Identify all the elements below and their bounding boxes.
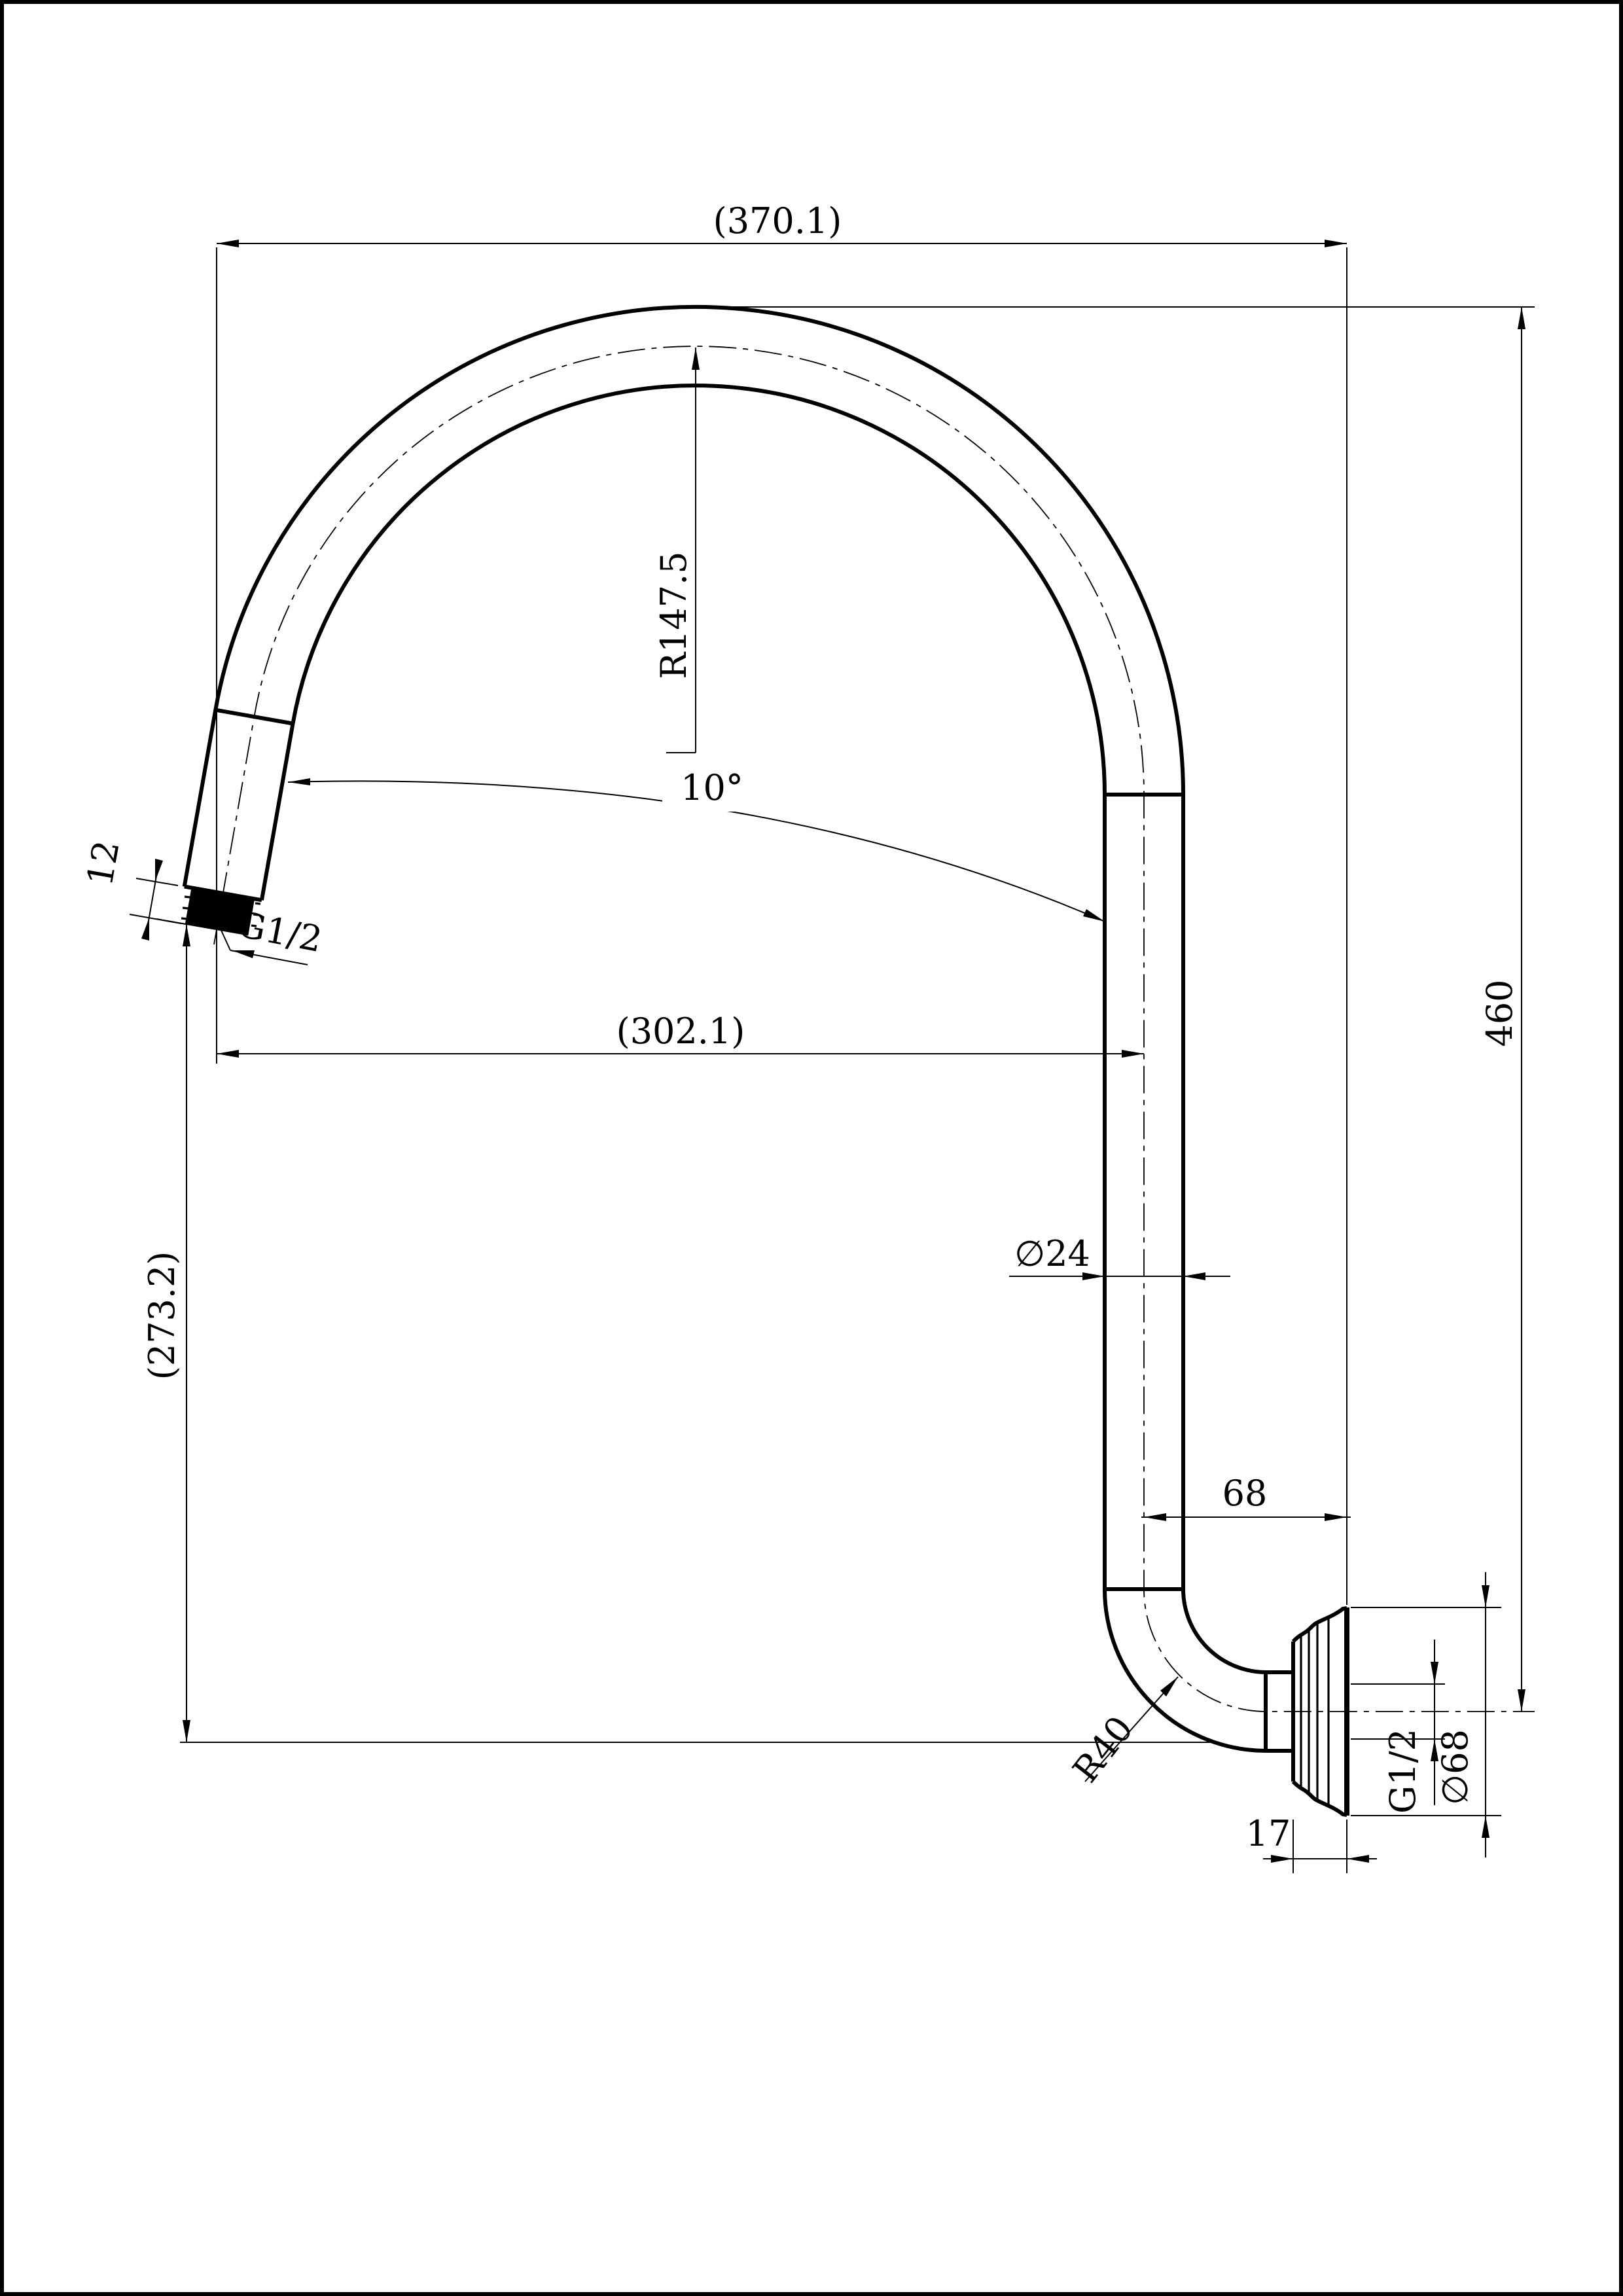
pipe-centerline (214, 346, 1535, 1712)
technical-drawing-canvas: (370.1) 460 R147.5 10° (302.1) (273 (0, 0, 1623, 2296)
dim-reach: (302.1) (217, 1011, 1144, 1058)
arrowhead (1183, 1272, 1205, 1280)
arrowhead (232, 950, 255, 958)
dim-wall-thread: G1/2 (1351, 1640, 1445, 1814)
dim-axis-to-wall: 68 (1141, 1473, 1351, 1521)
dim-label-axis-to-wall: 68 (1222, 1473, 1268, 1514)
arrowhead (1271, 1855, 1293, 1863)
thread-crest-tick (185, 897, 190, 897)
arrowhead (1144, 1513, 1166, 1521)
arrowhead (155, 859, 163, 882)
pipe-centerline-path (214, 346, 1535, 1712)
arrowhead (692, 348, 700, 370)
thread-crest-tick (255, 903, 260, 904)
arrowhead (217, 1050, 239, 1058)
dim-overall-width: (370.1) (217, 200, 1347, 1605)
dim-main-bend-radius: R147.5 (653, 348, 700, 753)
thread-crest-tick (183, 908, 188, 908)
dim-label-pipe-diameter: ∅24 (1014, 1233, 1090, 1274)
dim-label-wall-thread: G1/2 (1382, 1729, 1423, 1814)
arrowhead (1325, 240, 1347, 247)
arrowhead (141, 918, 149, 941)
arrowhead (183, 1720, 190, 1742)
arrowhead (1325, 1513, 1347, 1521)
arrowhead (1518, 307, 1525, 329)
label-wall-bend-radius: R40 (1065, 1677, 1178, 1790)
thread-crest-tick (181, 918, 187, 919)
dim-label-flange-diameter: ∅68 (1435, 1729, 1476, 1805)
extension-line-b (130, 914, 181, 924)
dim-overall-height: 460 (696, 307, 1535, 1712)
drawing-sheet: (370.1) 460 R147.5 10° (302.1) (273 (0, 0, 1623, 2296)
dim-flange-diameter: ∅68 (1351, 1572, 1501, 1857)
arrowhead (1083, 909, 1105, 922)
dim-label-reach: (302.1) (616, 1011, 745, 1052)
arrowhead (1347, 1855, 1369, 1863)
arm-outer-edge (185, 307, 1293, 1672)
arrowhead (1518, 1689, 1525, 1712)
arrowhead (1482, 1816, 1489, 1838)
arrowhead (1482, 1585, 1489, 1607)
dim-outlet-angle: 10° (288, 759, 1105, 922)
arrowhead (1122, 1050, 1144, 1058)
dim-label-drop-height: (273.2) (141, 1251, 183, 1380)
dim-label-main-bend-radius: R147.5 (653, 551, 694, 679)
extension-line-a (136, 878, 178, 886)
joint-outlet-tube (215, 710, 293, 724)
dim-label-outlet-angle: 10° (681, 767, 743, 808)
arrowhead (217, 240, 239, 247)
arrowhead (288, 778, 310, 785)
dim-label-overall-height: 460 (1479, 979, 1520, 1047)
dim-label-overall-width: (370.1) (713, 200, 842, 242)
sheet-border (2, 2, 1621, 2294)
dim-flange-depth: 17 (1246, 1813, 1377, 1873)
dim-label-wall-bend-radius: R40 (1065, 1708, 1141, 1790)
arrowhead (183, 924, 190, 946)
arrowhead (1431, 1662, 1438, 1684)
dim-label-thread-length: 12 (79, 837, 128, 889)
dim-pipe-diameter: ∅24 (1009, 1233, 1230, 1280)
dim-label-flange-depth: 17 (1246, 1813, 1291, 1854)
dim-thread-length: 12 (79, 837, 181, 941)
